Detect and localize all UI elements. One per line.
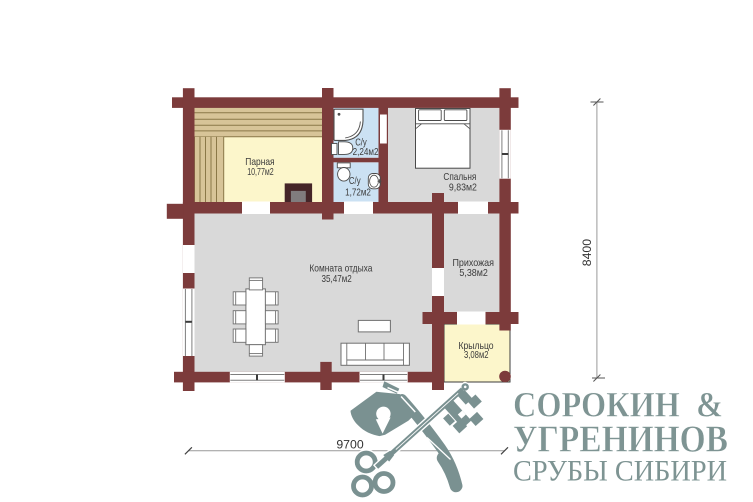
svg-text:2,24м2: 2,24м2	[353, 146, 379, 158]
svg-text:35,47м2: 35,47м2	[322, 273, 352, 285]
svg-text:СРУБЫ СИБИРИ: СРУБЫ СИБИРИ	[513, 455, 727, 488]
svg-text:9,83м2: 9,83м2	[449, 181, 477, 193]
svg-text:10,77м2: 10,77м2	[247, 166, 274, 178]
svg-text:9700: 9700	[336, 438, 364, 452]
svg-text:3,08м2: 3,08м2	[464, 349, 489, 361]
svg-text:1,72м2: 1,72м2	[345, 186, 371, 198]
svg-text:8400: 8400	[580, 239, 594, 267]
svg-text:С/у: С/у	[349, 175, 361, 187]
svg-text:5,38м2: 5,38м2	[459, 267, 488, 279]
